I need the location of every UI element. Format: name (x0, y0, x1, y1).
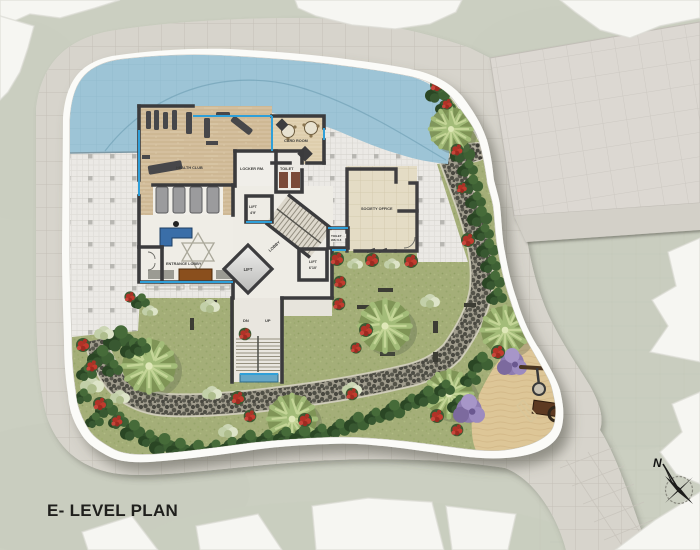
svg-text:SOCIETY OFFICE: SOCIETY OFFICE (361, 207, 393, 211)
svg-text:CARD ROOM: CARD ROOM (284, 139, 308, 143)
svg-text:ENTRANCE LOBBY: ENTRANCE LOBBY (166, 262, 202, 266)
svg-text:HEALTH CLUB: HEALTH CLUB (176, 166, 203, 170)
svg-text:6'10': 6'10' (309, 266, 317, 270)
svg-text:DN: DN (243, 318, 249, 323)
svg-text:LIFT: LIFT (249, 205, 258, 209)
svg-text:4'9': 4'9' (250, 211, 256, 215)
svg-text:TOILET: TOILET (280, 167, 294, 171)
svg-text:W/H 6-6: W/H 6-6 (331, 238, 342, 242)
svg-text:UP: UP (265, 318, 271, 323)
svg-text:N: N (653, 456, 662, 470)
svg-text:E- LEVEL PLAN: E- LEVEL PLAN (47, 501, 178, 520)
svg-text:LOCKER RM.: LOCKER RM. (240, 167, 264, 171)
svg-text:LIFT: LIFT (244, 267, 253, 272)
svg-text:LIFT: LIFT (309, 260, 318, 264)
